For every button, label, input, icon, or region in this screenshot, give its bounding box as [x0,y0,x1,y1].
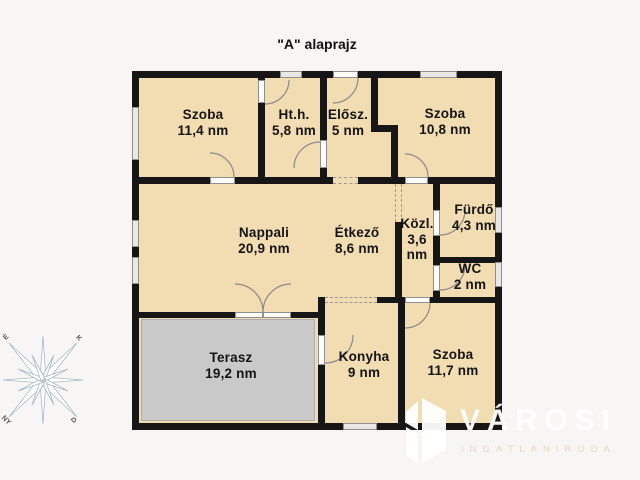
floor-plan-page: "A" alaprajz [0,0,640,480]
room-label-szoba-2: Szoba 10,8 nm [398,106,492,137]
room-label-szoba-1: Szoba 11,4 nm [148,107,258,138]
logo-brand-text: VÁROSI [460,404,617,438]
room-name: Terasz [181,350,281,366]
room-name: Konyha [327,349,401,365]
room-label-wc: WC 2 nm [446,261,494,292]
room-area: 4,3 nm [446,218,502,234]
room-label-hth: Ht.h. 5,8 nm [266,107,322,138]
door-logo-icon [406,398,450,466]
room-area: 19,2 nm [181,366,281,382]
room-name: Szoba [148,107,258,123]
room-area: 20,9 nm [214,241,314,257]
room-name: Fürdő [446,202,502,218]
room-area: 9 nm [327,365,401,381]
room-label-szoba-3: Szoba 11,7 nm [408,347,498,378]
room-area: 5,8 nm [266,123,322,139]
room-name: Szoba [408,347,498,363]
room-label-elosz: Elősz. 5 nm [324,107,372,138]
room-name: Elősz. [324,107,372,123]
room-area: 5 nm [324,123,372,139]
room-label-konyha: Konyha 9 nm [327,349,401,380]
room-label-kozl: Közl. 3,6 nm [399,216,435,263]
room-name: Nappali [214,225,314,241]
room-name: Étkező [312,225,402,241]
room-area: 8,6 nm [312,241,402,257]
room-name: Ht.h. [266,107,322,123]
room-area: 2 nm [446,277,494,293]
room-label-terasz: Terasz 19,2 nm [181,350,281,381]
room-label-etkezo: Étkező 8,6 nm [312,225,402,256]
room-label-nappali: Nappali 20,9 nm [214,225,314,256]
room-name: Közl. [399,216,435,232]
logo-subtitle-text: INGATLANIRODA [461,444,616,455]
room-name: WC [446,261,494,277]
room-area: 3,6 nm [399,232,435,263]
agency-logo: VÁROSI INGATLANIRODA [404,394,640,470]
room-name: Szoba [398,106,492,122]
compass-rose: É K NY D [0,330,86,430]
room-area: 11,7 nm [408,363,498,379]
room-area: 10,8 nm [398,122,492,138]
room-label-furdo: Fürdő 4,3 nm [446,202,502,233]
room-area: 11,4 nm [148,123,258,139]
